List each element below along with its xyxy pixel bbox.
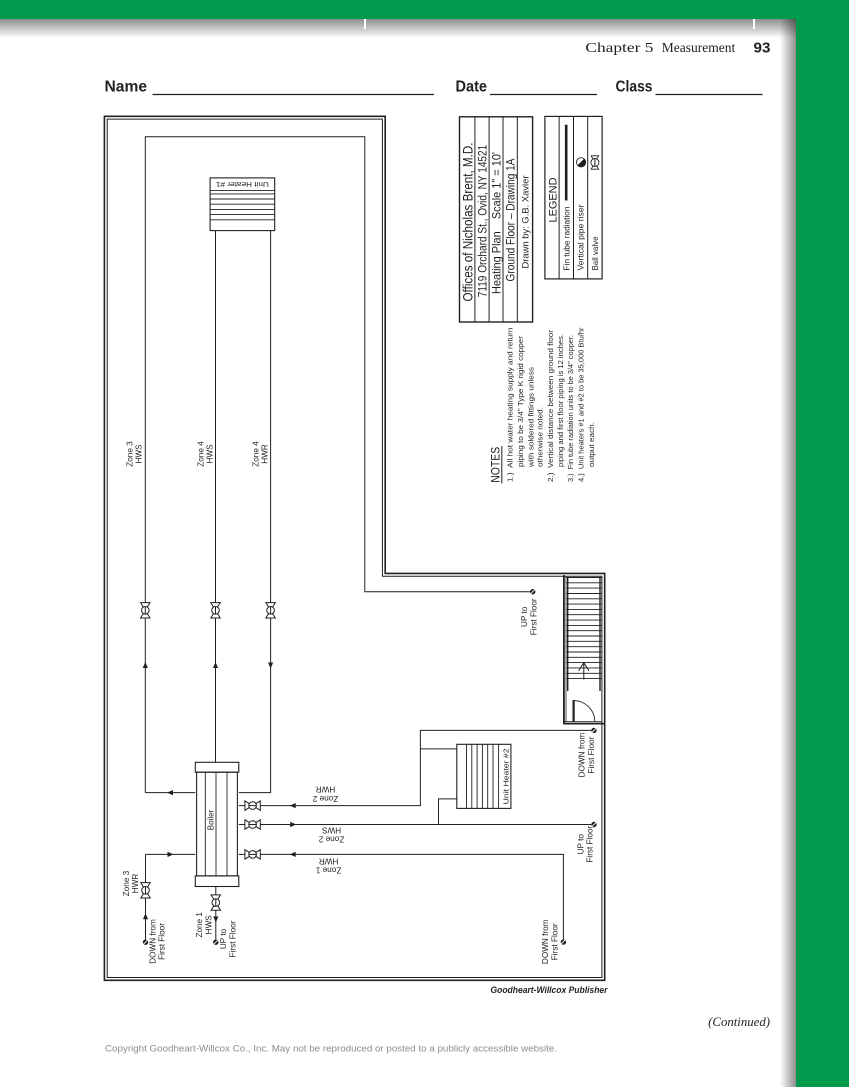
svg-text:Name: Name <box>105 79 148 96</box>
svg-text:Goodheart-Willcox Publisher: Goodheart-Willcox Publisher <box>491 985 608 995</box>
svg-text:Copyright Goodheart-Willcox Co: Copyright Goodheart-Willcox Co., Inc. Ma… <box>105 1044 557 1054</box>
svg-text:DOWN from: DOWN from <box>578 733 587 778</box>
svg-text:HWR: HWR <box>131 874 140 894</box>
svg-text:Drawn by: G.B. Xavier: Drawn by: G.B. Xavier <box>520 175 530 268</box>
svg-text:7119 Orchard St., Ovid, NY 145: 7119 Orchard St., Ovid, NY 14521 <box>476 145 490 298</box>
svg-text:UP to: UP to <box>219 928 228 949</box>
svg-text:Fin tube radiation: Fin tube radiation <box>562 206 571 270</box>
svg-text:HWR: HWR <box>316 785 336 794</box>
svg-text:First Floor: First Floor <box>228 920 237 957</box>
svg-text:First Floor: First Floor <box>550 923 559 960</box>
svg-text:UP to: UP to <box>520 606 529 627</box>
svg-text:Zone 2: Zone 2 <box>312 794 338 803</box>
svg-text:Ball valve: Ball valve <box>591 236 600 270</box>
svg-text:4.) Unit heaters #1 and #2 to: 4.) Unit heaters #1 and #2 to be 35,000 … <box>577 327 586 482</box>
svg-text:First Floor: First Floor <box>587 736 596 773</box>
svg-text:Class: Class <box>616 79 653 96</box>
svg-text:HWS: HWS <box>204 915 213 935</box>
svg-text:Zone 1: Zone 1 <box>195 912 204 938</box>
svg-text:Chapter 5: Chapter 5 <box>585 41 653 56</box>
svg-text:HWS: HWS <box>206 444 215 464</box>
svg-text:Boiler: Boiler <box>206 809 215 830</box>
svg-text:Unit Heater #2: Unit Heater #2 <box>501 748 510 804</box>
svg-text:Date: Date <box>456 79 488 96</box>
svg-text:HWR: HWR <box>319 856 339 865</box>
svg-text:DOWN from: DOWN from <box>148 919 157 964</box>
svg-text:1.) All hot water heating sup: 1.) All hot water heating supply and ret… <box>505 328 514 483</box>
svg-text:Zone 3: Zone 3 <box>122 870 131 896</box>
svg-text:Zone 2: Zone 2 <box>318 835 344 844</box>
svg-text:piping and first floor piping: piping and first floor piping is 12 inch… <box>556 334 565 467</box>
svg-text:3.) Fin tube radiation units: 3.) Fin tube radiation units to be 3/4" … <box>566 335 575 482</box>
svg-text:HWR: HWR <box>261 444 270 464</box>
svg-text:otherwise noted.: otherwise noted. <box>535 407 544 467</box>
svg-text:Unit Heater #1: Unit Heater #1 <box>216 180 269 189</box>
svg-text:Measurement: Measurement <box>662 41 736 56</box>
svg-text:NOTES: NOTES <box>491 447 503 483</box>
svg-text:LEGEND: LEGEND <box>547 177 559 222</box>
svg-text:Zone 4: Zone 4 <box>196 441 205 467</box>
svg-text:First Floor: First Floor <box>586 826 595 863</box>
svg-text:Heating Plan Scale 1" = 10': Heating Plan Scale 1" = 10' <box>489 152 503 294</box>
svg-text:piping to be 3/4" Type K rigid: piping to be 3/4" Type K rigid copper <box>516 335 525 467</box>
svg-text:Ground Floor – Drawing 1A: Ground Floor – Drawing 1A <box>503 158 517 281</box>
svg-text:HWS: HWS <box>322 825 342 834</box>
svg-text:Offices of Nicholas Brent, M.D: Offices of Nicholas Brent, M.D. <box>459 143 475 302</box>
svg-text:Vertical pipe riser: Vertical pipe riser <box>577 204 586 270</box>
svg-text:DOWN from: DOWN from <box>541 919 550 964</box>
svg-text:First Floor: First Floor <box>158 923 167 960</box>
svg-text:HWS: HWS <box>135 444 144 464</box>
svg-text:Zone 4: Zone 4 <box>251 441 260 467</box>
svg-text:2.) Vertical distance between: 2.) Vertical distance between ground flo… <box>546 329 555 482</box>
svg-text:Zone 1: Zone 1 <box>315 866 341 875</box>
svg-text:First Floor: First Floor <box>529 598 538 635</box>
svg-text:(Continued): (Continued) <box>708 1015 770 1029</box>
svg-text:output each.: output each. <box>587 422 596 467</box>
svg-text:93: 93 <box>754 40 771 57</box>
svg-text:Zone 3: Zone 3 <box>125 441 134 467</box>
svg-text:UP to: UP to <box>576 834 585 855</box>
